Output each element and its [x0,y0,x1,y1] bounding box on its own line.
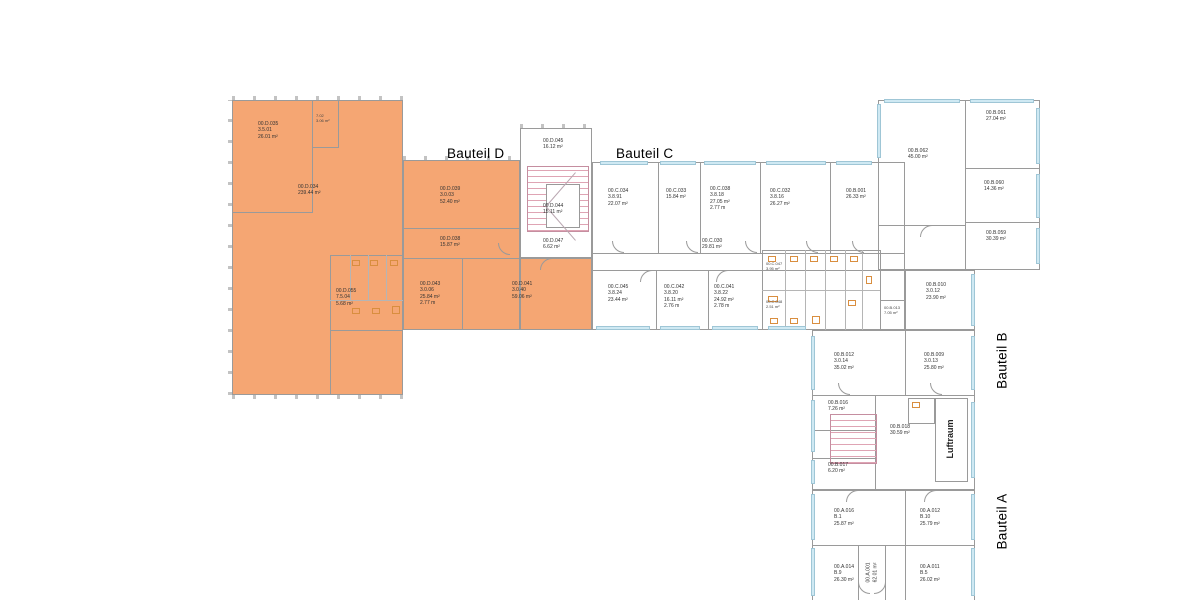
window-strip [766,161,826,165]
fixture [790,256,798,262]
luftraum-label: Luftraum [945,404,955,474]
room-label: 00.A.016 B.1 25.87 m² [834,508,854,527]
room-label: 00.C.038 3.8.18 27.05 m² 2.77 m [710,186,730,211]
fixture [912,402,920,408]
room-label: 00.D.041 3.0.40 59.06 m² [512,281,532,300]
wall [965,168,1040,169]
room-label: 00.B.012 3.0.14 35.02 m² [834,352,854,371]
room-label: 00.C.042 3.8.20 16.11 m² 2.76 m [664,284,684,309]
room-label: 00.A.012 B.10 25.79 m² [920,508,940,527]
corridor-label: 00.C.030 29.81 m² [702,238,722,251]
window-strip [971,336,975,390]
room-label: 00.A.011 B.5 26.02 m² [920,564,940,583]
fixture [352,260,360,266]
window-strip [811,460,815,484]
bauteil-a-label: Bauteil A [995,482,1010,562]
room-label: 00.D.039 3.0.03 52.40 m² [440,186,460,205]
window-strip [596,326,650,330]
bauteil-b-label: Bauteil B [995,321,1010,401]
window-strip [660,161,696,165]
wall [330,255,403,256]
stair-b [830,414,877,464]
wall [462,258,463,330]
window-strip [1036,228,1040,264]
fixture [770,318,778,324]
room-label: 00.B.016 7.26 m² [828,400,848,413]
window-strip [811,548,815,596]
room-label: 00.C.034 3.8.91 22.07 m² [608,188,628,207]
window-strip [768,326,806,330]
window-strip [1036,108,1040,164]
fixture [790,318,798,324]
wall [830,162,831,253]
room-label: 00.B.010 3.0.12 23.90 m² [926,282,946,301]
room-label: 00.C.048 2.51 m² [766,300,782,310]
window-strip [836,161,872,165]
room-label: 00.B.059 30.39 m² [986,230,1006,243]
room-label: 00.C.045 3.8.24 23.44 m² [608,284,628,303]
room-label: 00.B.062 45.00 m² [908,148,928,161]
fixture [848,300,856,306]
room-label: 00.B.018 30.59 m² [890,424,910,437]
fixture [352,308,360,314]
stall-wall [386,255,387,300]
room-label: 00.B.060 14.36 m² [984,180,1004,193]
wall [656,270,657,330]
wall [905,330,906,395]
window-strip [884,99,960,103]
room-label: 00.D.043 3.0.06 25.84 m² 2.77 m [420,281,440,306]
fixture [372,308,380,314]
room-label: 00.D.055 7.5.04 5.68 m² [336,288,356,307]
room-label: 00.C.041 3.8.22 24.92 m² 2.78 m [714,284,734,309]
corridor-label: 00.A.001 62.01 m² [866,543,879,600]
window-strip [1036,174,1040,218]
wall [232,212,313,213]
floorplan-canvas: Bauteil D Bauteil C Bauteil B Bauteil A … [0,0,1200,600]
wing-b-top-outline [878,100,1040,270]
wall [885,545,886,600]
fixture [850,256,858,262]
wing-d-main-outline [232,100,403,395]
wall [330,330,403,331]
corridor-wall [592,253,905,254]
room-label: 00.D.035 3.5.01 26.01 m² [258,121,278,140]
wall [658,162,659,253]
wall [338,100,339,147]
room-label: 00.B.009 3.0.13 25.80 m² [924,352,944,371]
room-label: 00.D.038 15.87 m² [440,236,460,249]
wall [760,162,761,253]
window-strip [811,400,815,452]
bauteil-d-label: Bauteil D [447,146,504,161]
room-label: 7.02 3.06 m² [316,114,330,124]
wall [812,395,975,396]
room-label: 00.D.047 6.62 m² [543,238,563,251]
window-strip [971,494,975,540]
window-strip [971,548,975,596]
window-strip [971,402,975,478]
fixture [390,260,398,266]
window-strip [704,161,756,165]
wall [330,255,331,395]
wall [312,147,339,148]
fixture [370,260,378,266]
facade-ticks [232,395,403,399]
room-label: 00.C.033 15.84 m² [666,188,686,201]
window-strip [970,99,1034,103]
wall [812,545,975,546]
room-label: 00.A.014 B.9 26.30 m² [834,564,854,583]
stall-wall [368,255,369,300]
fixture [812,316,820,324]
corridor-wall [592,270,905,271]
bauteil-c-label: Bauteil C [616,146,673,161]
room-label: 00.B.001 26.33 m² [846,188,866,201]
wall [858,545,859,600]
fixture [866,276,872,284]
wall [708,270,709,330]
wall [880,250,881,330]
window-strip [600,161,648,165]
fixture [830,256,838,262]
window-strip [660,326,700,330]
stall-wall [762,290,880,291]
window-strip [811,336,815,390]
room-label: 00.B.017 6.20 m² [828,462,848,475]
wall [965,100,966,270]
window-strip [877,104,881,158]
room-label: 00.C.047 3.95 m² [766,262,782,272]
window-strip [811,494,815,540]
room-label: 00.D.045 16.12 m² [543,138,563,151]
room-label: 00.C.032 3.8.16 26.27 m² [770,188,790,207]
window-strip [971,274,975,326]
room-label: 00.D.044 15.11 m² [543,203,563,216]
fixture [810,256,818,262]
wall [878,225,965,226]
fixture [392,306,400,314]
wall [403,228,520,229]
wall [700,162,701,253]
wall [965,222,1040,223]
wall [880,300,905,301]
window-strip [712,326,758,330]
room-label: 00.B.061 27.04 m² [986,110,1006,123]
room-label: 00.B.013 7.05 m² [884,306,900,316]
room-label: 00.D.034 239.44 m² [298,184,321,197]
